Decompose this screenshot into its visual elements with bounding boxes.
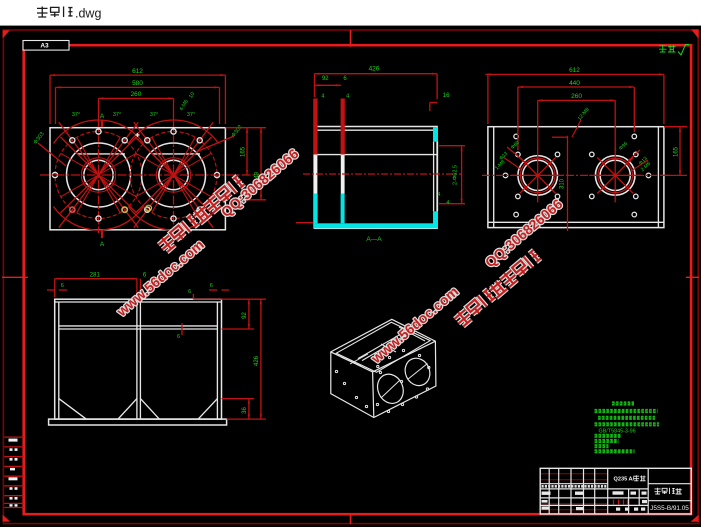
svg-text:37°: 37° <box>113 112 121 118</box>
svg-text:.dwg: .dwg <box>75 7 101 21</box>
svg-text:37°: 37° <box>72 112 80 118</box>
svg-text:4: 4 <box>346 94 349 100</box>
svg-text:165: 165 <box>241 146 247 157</box>
svg-text:37°: 37° <box>150 112 158 118</box>
svg-text:612: 612 <box>132 68 143 75</box>
svg-text:6: 6 <box>143 273 147 279</box>
svg-text:Q235 A/: Q235 A/ <box>614 476 635 482</box>
svg-text:1-M8: 1-M8 <box>494 159 506 171</box>
svg-text:36: 36 <box>242 407 248 414</box>
svg-text:16: 16 <box>443 93 450 99</box>
svg-text:6: 6 <box>177 334 180 340</box>
svg-text:J5S5-B/91.05: J5S5-B/91.05 <box>650 505 689 512</box>
svg-text:4: 4 <box>438 192 441 198</box>
svg-text:A—A: A—A <box>366 236 382 243</box>
svg-text:www.56doc.com: www.56doc.com <box>113 236 207 320</box>
svg-text:6: 6 <box>343 76 347 82</box>
svg-text:440: 440 <box>569 80 580 87</box>
svg-text:6: 6 <box>210 283 213 289</box>
svg-text:A: A <box>100 241 105 248</box>
svg-text:6: 6 <box>61 283 64 289</box>
svg-text:310: 310 <box>560 178 566 189</box>
svg-text:612: 612 <box>569 67 580 74</box>
svg-text:Φ60: Φ60 <box>510 140 521 151</box>
svg-text:92: 92 <box>242 312 248 319</box>
svg-text:426: 426 <box>369 66 380 73</box>
svg-text:426: 426 <box>254 355 260 366</box>
svg-text:165: 165 <box>674 146 680 157</box>
svg-text:281: 281 <box>90 273 101 279</box>
svg-text:Φ302: Φ302 <box>231 124 244 138</box>
svg-text:GB/T5845-3-96: GB/T5845-3-96 <box>599 428 636 434</box>
svg-text:4: 4 <box>447 200 450 206</box>
svg-text:Φ96: Φ96 <box>618 141 629 152</box>
svg-text:6: 6 <box>188 289 191 295</box>
svg-text:2-Φ62.5: 2-Φ62.5 <box>453 165 459 185</box>
svg-text:12-M8: 12-M8 <box>577 107 591 122</box>
svg-text:4: 4 <box>321 94 324 100</box>
svg-text:10: 10 <box>188 91 196 99</box>
svg-text:260: 260 <box>571 93 582 100</box>
svg-text:260: 260 <box>131 91 142 98</box>
svg-text:A3: A3 <box>40 43 49 50</box>
svg-text:92: 92 <box>322 76 329 82</box>
svg-text:37°: 37° <box>187 112 195 118</box>
svg-text:580: 580 <box>132 80 143 87</box>
svg-text:4-M6: 4-M6 <box>178 99 189 112</box>
svg-text:A: A <box>100 113 105 120</box>
